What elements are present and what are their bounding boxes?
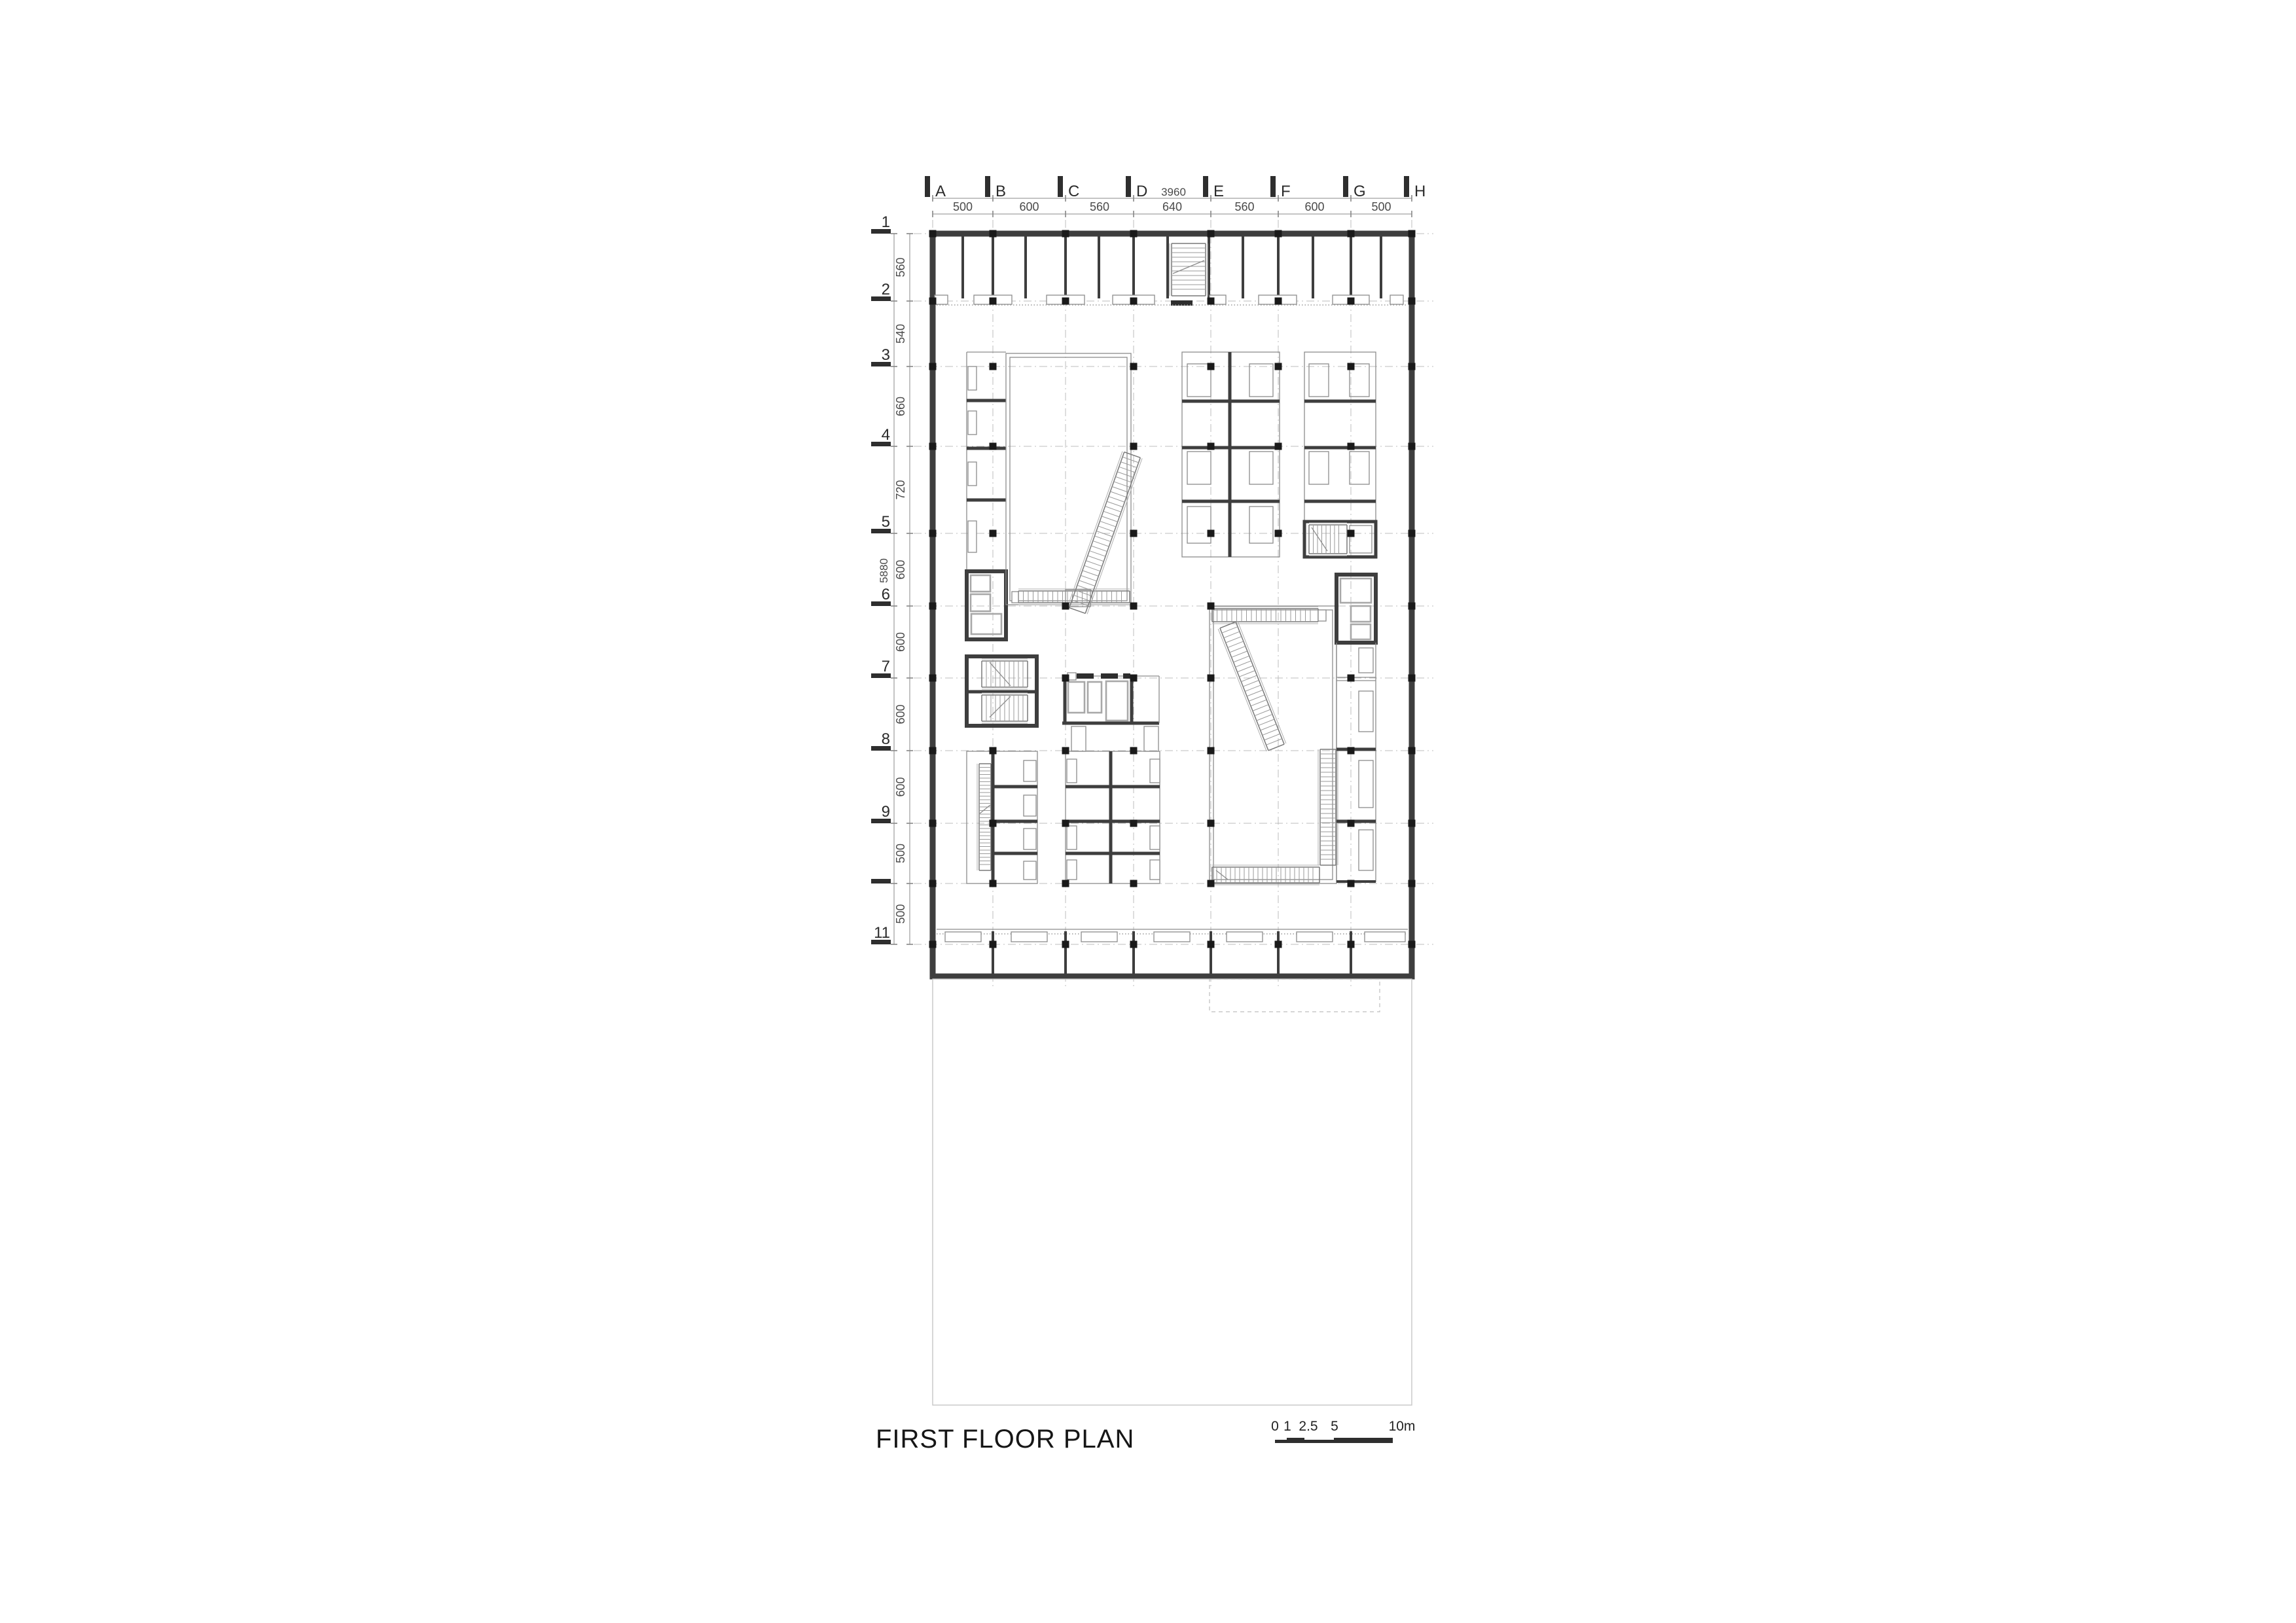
column-marker (1130, 603, 1138, 610)
column-marker (1208, 820, 1215, 827)
column-marker (1208, 530, 1215, 537)
side-bay-dimension: 600 (894, 632, 907, 652)
column-marker (990, 820, 997, 827)
side-bay-dimension: 600 (894, 704, 907, 724)
grid-number-label: 3 (882, 346, 890, 364)
right-elevator-core (1336, 575, 1376, 643)
column-marker (1130, 880, 1138, 887)
column-marker (929, 675, 937, 682)
column-marker (1408, 820, 1416, 827)
stair-tread (1228, 641, 1244, 648)
column-marker (929, 820, 937, 827)
stair-tread (1241, 675, 1257, 682)
grid-marker-bar (1404, 176, 1409, 197)
column-marker (1408, 675, 1416, 682)
side-total-dimension: 5880 (878, 558, 890, 583)
top-bay-dimension: 640 (1162, 200, 1182, 213)
stair-tread (1259, 719, 1274, 726)
column-marker (990, 747, 997, 755)
diagonal-stair (1218, 621, 1286, 751)
column-marker (1062, 820, 1069, 827)
column-marker (1208, 298, 1215, 305)
column-marker (1208, 603, 1215, 610)
column-marker (1348, 363, 1355, 370)
column-marker (1408, 880, 1416, 887)
bottom-room-band (937, 929, 1408, 974)
stair-tread (1232, 651, 1247, 658)
bottom-middle-block (1066, 726, 1160, 883)
column-marker (1208, 230, 1215, 238)
column-marker (990, 298, 997, 305)
stair-tread (1251, 700, 1266, 706)
grid-marker-bar (1343, 176, 1348, 197)
stair-tread (1255, 709, 1270, 716)
side-bay-dimension: 500 (894, 844, 907, 863)
stair-tread (1077, 585, 1094, 591)
stair-tread (1100, 521, 1116, 527)
grid-number-label: 11 (874, 924, 890, 942)
grid-number-label: 1 (882, 213, 890, 231)
stair-end-cap (1069, 608, 1086, 614)
grid-marker-bar (1270, 176, 1276, 197)
stair-tread (1121, 462, 1137, 468)
stair-tread (1096, 531, 1113, 537)
column-marker (1275, 941, 1282, 948)
column-marker (929, 530, 937, 537)
left-atrium-hall (1006, 353, 1142, 614)
column-marker (990, 443, 997, 450)
stair-tread (1263, 729, 1278, 736)
column-marker (929, 880, 937, 887)
stair-tread (1235, 661, 1251, 668)
column-marker (1208, 941, 1215, 948)
stair-stringer (1069, 452, 1124, 608)
column-marker (1208, 880, 1215, 887)
grid-letter-label: A (935, 183, 946, 200)
stair-tread (1257, 715, 1272, 721)
column-marker (990, 230, 997, 238)
top-bay-dimension: 500 (1371, 200, 1391, 213)
scale-label-10m: 10m (1389, 1419, 1416, 1434)
stair-tread (1243, 680, 1259, 687)
stair-tread (1102, 516, 1118, 522)
grid-marker-bar (985, 176, 990, 197)
stair-tread (1085, 565, 1101, 571)
stair-tread (1265, 734, 1280, 740)
grid-number-label: 9 (882, 803, 890, 821)
column-marker (1130, 230, 1138, 238)
column-marker (929, 230, 937, 238)
top-bay-dimension: 600 (1304, 200, 1324, 213)
column-marker (990, 363, 997, 370)
stair-stringer (1238, 621, 1286, 743)
column-marker (929, 941, 937, 948)
stair-tread (1245, 685, 1261, 692)
column-marker (1275, 363, 1282, 370)
grid-marker-bar (925, 176, 930, 197)
column-marker (929, 747, 937, 755)
top-bay-dimension: 560 (1234, 200, 1254, 213)
column-marker (1208, 443, 1215, 450)
stair-tread (1112, 486, 1128, 492)
floor-plan-drawing: ABCDEFGH12345678911500600560640560600500… (0, 0, 2296, 1623)
grid-letter-label: G (1354, 183, 1366, 200)
grid-letter-label: F (1281, 183, 1291, 200)
stair-tread (1247, 690, 1263, 696)
column-marker (1408, 363, 1416, 370)
column-marker (1348, 443, 1355, 450)
left-stair-core (967, 656, 1037, 726)
wc-core (1062, 673, 1159, 723)
grid-marker-bar (1126, 176, 1131, 197)
scale-label-1: 1 (1283, 1419, 1291, 1434)
stair-tread (1122, 457, 1139, 463)
column-marker (1275, 298, 1282, 305)
band-stair (1170, 243, 1208, 296)
stair-tread (1224, 632, 1240, 638)
stair-end-cap (1268, 744, 1284, 751)
column-marker (929, 603, 937, 610)
column-marker (1275, 443, 1282, 450)
grid-letter-label: D (1136, 183, 1147, 200)
column-marker (1130, 363, 1138, 370)
column-marker (1208, 675, 1215, 682)
stair-tread (1083, 571, 1099, 577)
column-marker (990, 530, 997, 537)
column-marker (1408, 298, 1416, 305)
side-bay-dimension: 600 (894, 560, 907, 579)
stair-tread (1222, 627, 1238, 633)
stair-tread (1261, 724, 1276, 730)
stair-tread (1091, 546, 1107, 552)
column-marker (1130, 820, 1138, 827)
top-bay-dimension: 500 (953, 200, 973, 213)
center-room-block (1182, 352, 1280, 557)
title-block: FIRST FLOOR PLAN 0 1 2.5 5 10m (876, 1419, 1415, 1454)
column-marker (1275, 530, 1282, 537)
stair-core (1304, 522, 1376, 557)
column-marker (1408, 230, 1416, 238)
top-bay-dimension: 560 (1090, 200, 1109, 213)
stair-tread (1094, 536, 1111, 542)
stair-tread (1098, 526, 1115, 532)
column-marker (1062, 880, 1069, 887)
stair-tread (1086, 561, 1102, 567)
column-marker (1408, 603, 1416, 610)
stair-stringer (1067, 452, 1122, 607)
stair-tread (1239, 671, 1255, 677)
column-marker (929, 363, 937, 370)
stair-tread (1105, 507, 1121, 512)
grid-number-label: 7 (882, 658, 890, 675)
column-marker (1408, 747, 1416, 755)
stair-tread (1081, 575, 1097, 581)
side-bay-dimension: 560 (894, 257, 907, 277)
first-floor-plan-sheet: ABCDEFGH12345678911500600560640560600500… (0, 0, 2296, 1623)
structural-columns (929, 230, 1416, 948)
stair-tread (1249, 695, 1265, 702)
stair-tread (1226, 637, 1242, 643)
column-marker (1062, 675, 1069, 682)
top-room-band (935, 236, 1408, 306)
scale-label-0: 0 (1271, 1419, 1279, 1434)
bottom-left-block (967, 751, 1037, 883)
stair-flight-upper (982, 659, 1028, 689)
column-marker (1130, 530, 1138, 537)
scale-label-25: 2.5 (1299, 1419, 1318, 1434)
grid-letter-label: H (1414, 183, 1426, 200)
column-marker (929, 443, 937, 450)
drawing-title: FIRST FLOOR PLAN (876, 1425, 1134, 1454)
grid-number-label: 8 (882, 730, 890, 748)
stair-tread (1089, 551, 1105, 557)
column-marker (1208, 747, 1215, 755)
scale-bar: 0 1 2.5 5 10m (1271, 1419, 1415, 1442)
column-marker (1062, 603, 1069, 610)
stair-flight (1309, 523, 1347, 556)
right-room-block (1304, 352, 1376, 557)
right-wall-rooms (1336, 643, 1376, 882)
stair-tread (1093, 541, 1109, 546)
l-stair-horizontal-run (1212, 865, 1319, 885)
side-bay-dimension: 720 (894, 480, 907, 499)
stair-tread (1107, 501, 1123, 507)
walkway-escalator (1212, 607, 1318, 624)
stair-tread (1230, 646, 1246, 652)
column-marker (1130, 675, 1138, 682)
grid-marker-bar (1203, 176, 1208, 197)
column-marker (1348, 230, 1355, 238)
column-marker (1275, 230, 1282, 238)
stair-flight-lower (982, 693, 1028, 723)
column-marker (1130, 747, 1138, 755)
top-total-dimension: 3960 (1161, 186, 1186, 198)
column-marker (1062, 941, 1069, 948)
column-marker (990, 941, 997, 948)
grid-letter-label: E (1213, 183, 1224, 200)
walkway-escalator (1018, 589, 1130, 605)
column-marker (1348, 298, 1355, 305)
column-marker (1348, 675, 1355, 682)
column-marker (1348, 747, 1355, 755)
grid-marker-bar (871, 879, 891, 883)
left-room-block (967, 352, 1006, 571)
side-bay-dimension: 600 (894, 777, 907, 796)
scale-label-5: 5 (1331, 1419, 1338, 1434)
column-marker (1408, 443, 1416, 450)
stair-tread (1253, 705, 1268, 711)
column-marker (990, 880, 997, 887)
stair-tread (1237, 666, 1253, 672)
building-plan (929, 230, 1416, 977)
stair-tread (1110, 491, 1126, 497)
ground-outline (933, 979, 1412, 1405)
top-bay-dimension: 600 (1019, 200, 1039, 213)
grid-number-label: 2 (882, 281, 890, 298)
l-stair-vertical-run (1318, 749, 1338, 865)
stair-tread (1079, 580, 1096, 586)
column-marker (1348, 820, 1355, 827)
right-atrium-hall (1210, 606, 1338, 885)
column-marker (1062, 230, 1069, 238)
column-marker (1130, 443, 1138, 450)
stair-stringer (1236, 622, 1284, 744)
column-marker (929, 298, 937, 305)
left-elevator-core (967, 571, 1006, 639)
column-marker (1348, 880, 1355, 887)
stair-end-cap (1220, 622, 1236, 628)
column-marker (1062, 298, 1069, 305)
column-marker (1208, 363, 1215, 370)
side-bay-dimension: 500 (894, 904, 907, 923)
stair-tread (1103, 511, 1120, 517)
stair-tread (1109, 497, 1125, 503)
stair-tread (1115, 476, 1132, 482)
column-marker (1130, 298, 1138, 305)
grid-letter-label: B (996, 183, 1006, 200)
grid-number-label: 4 (882, 426, 890, 444)
grid-number-label: 5 (882, 513, 890, 531)
column-marker (1408, 530, 1416, 537)
column-marker (1348, 941, 1355, 948)
grid-letter-label: C (1068, 183, 1079, 200)
stair-tread (1266, 739, 1282, 745)
long-stair (977, 764, 993, 870)
column-marker (1348, 530, 1355, 537)
column-marker (1408, 941, 1416, 948)
stair-tread (1234, 656, 1249, 662)
grid-number-label: 6 (882, 586, 890, 603)
side-bay-dimension: 660 (894, 397, 907, 416)
column-marker (1130, 941, 1138, 948)
column-marker (1062, 747, 1069, 755)
grid-marker-bar (1058, 176, 1063, 197)
side-bay-dimension: 540 (894, 324, 907, 344)
stair-tread (1088, 556, 1104, 562)
